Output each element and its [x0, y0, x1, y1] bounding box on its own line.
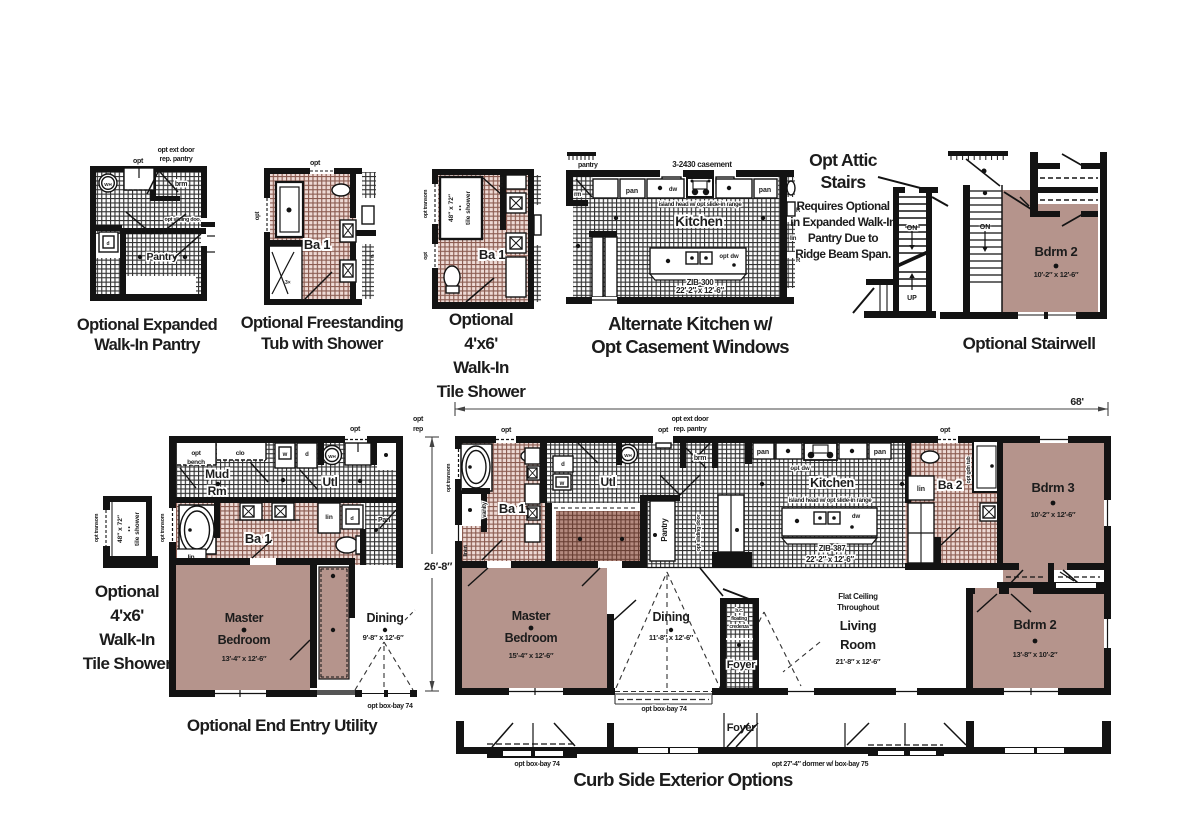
- svg-text:Pantry: Pantry: [147, 251, 178, 263]
- svg-text:tile shower: tile shower: [134, 512, 141, 546]
- svg-text:Opt Casement Windows: Opt Casement Windows: [591, 336, 789, 357]
- svg-text:Living: Living: [840, 618, 877, 633]
- svg-text:Ba 2: Ba 2: [938, 478, 963, 492]
- svg-text:UP: UP: [907, 295, 917, 302]
- svg-text:opt transom: opt transom: [160, 513, 166, 542]
- svg-text:Kitchen: Kitchen: [810, 476, 854, 490]
- svg-text:opt box-bay 74: opt box-bay 74: [514, 761, 560, 768]
- svg-text:in Expanded Walk-In: in Expanded Walk-In: [790, 215, 896, 229]
- svg-text:• •: • •: [458, 205, 464, 210]
- svg-text:10′-2″ x 12′-6″: 10′-2″ x 12′-6″: [1031, 510, 1076, 519]
- svg-text:b.c.: b.c.: [735, 608, 743, 614]
- svg-text:Utl: Utl: [322, 475, 337, 489]
- svg-text:opt sliding door: opt sliding door: [696, 513, 702, 551]
- svg-text:ON: ON: [907, 225, 918, 232]
- svg-text:Ridge Beam Span.: Ridge Beam Span.: [795, 247, 891, 261]
- svg-text:opt dw: opt dw: [790, 466, 810, 472]
- svg-text:opt sliding doo: opt sliding doo: [165, 217, 201, 223]
- svg-text:Throughout: Throughout: [837, 603, 880, 612]
- svg-text:Room: Room: [840, 637, 876, 652]
- svg-text:48″ x 72″: 48″ x 72″: [448, 194, 455, 222]
- svg-text:Foyer: Foyer: [727, 659, 756, 671]
- svg-text:opt: opt: [658, 427, 669, 434]
- svg-text:linen: linen: [463, 544, 469, 556]
- svg-text:opt: opt: [191, 450, 201, 457]
- svg-text:d: d: [350, 516, 353, 522]
- svg-text:Mud: Mud: [205, 467, 229, 481]
- svg-text:Flat Ceiling: Flat Ceiling: [838, 592, 878, 601]
- svg-text:WH: WH: [624, 453, 632, 458]
- svg-text:21′-8″ x 12′-6″: 21′-8″ x 12′-6″: [836, 657, 881, 666]
- svg-text:Optional End Entry Utility: Optional End Entry Utility: [187, 716, 378, 735]
- svg-text:rm: rm: [574, 192, 581, 198]
- svg-text:Optional Freestanding: Optional Freestanding: [241, 314, 404, 332]
- svg-text:WH: WH: [328, 454, 336, 459]
- svg-text:lin: lin: [790, 236, 797, 242]
- svg-text:opt ext door: opt ext door: [672, 416, 709, 423]
- svg-text:dw: dw: [852, 514, 861, 520]
- svg-text:Kitchen: Kitchen: [675, 214, 722, 229]
- svg-text:Stairs: Stairs: [820, 172, 866, 192]
- svg-text:opt: opt: [940, 427, 951, 434]
- svg-text:opt: opt: [310, 160, 321, 167]
- svg-text:opt transom: opt transom: [423, 189, 429, 218]
- svg-text:Opt Attic: Opt Attic: [809, 150, 878, 170]
- svg-text:10′-2″ x 12′-6″: 10′-2″ x 12′-6″: [1034, 270, 1079, 279]
- svg-text:opt ext door: opt ext door: [158, 147, 195, 154]
- svg-text:15′-4″ x 12′-6″: 15′-4″ x 12′-6″: [509, 651, 554, 660]
- svg-text:Bdrm 2: Bdrm 2: [1014, 617, 1057, 632]
- svg-text:Master: Master: [512, 609, 551, 623]
- svg-text:rep: rep: [413, 426, 423, 433]
- svg-text:linen: linen: [499, 177, 505, 187]
- svg-text:lin: lin: [917, 486, 925, 493]
- svg-text:pan: pan: [759, 187, 771, 194]
- svg-text:Tile Shower: Tile Shower: [437, 382, 526, 401]
- svg-text:13′-8″ x 10′-2″: 13′-8″ x 10′-2″: [1013, 650, 1058, 659]
- svg-text:opt: opt: [423, 252, 429, 260]
- svg-text:Pantry Due to: Pantry Due to: [808, 231, 878, 245]
- svg-text:dw: dw: [669, 187, 678, 193]
- svg-text:d: d: [371, 254, 374, 260]
- svg-text:rep. pantry: rep. pantry: [674, 426, 707, 433]
- svg-text:opt: opt: [350, 426, 361, 433]
- svg-text:Requires Optional: Requires Optional: [796, 199, 889, 213]
- svg-text:island head w/ opt slide-in ra: island head w/ opt slide-in range: [789, 498, 873, 504]
- svg-text:Optional Expanded: Optional Expanded: [77, 316, 217, 334]
- svg-text:pantry: pantry: [578, 162, 598, 169]
- svg-text:tile shower: tile shower: [465, 191, 472, 225]
- svg-text:clo: clo: [236, 450, 245, 457]
- svg-text:Master: Master: [225, 611, 264, 625]
- svg-text:opt transom: opt transom: [94, 513, 100, 542]
- svg-text:rep. pantry: rep. pantry: [160, 156, 193, 163]
- svg-text:48″ x 72″: 48″ x 72″: [117, 515, 124, 543]
- svg-text:• •: • •: [127, 526, 133, 531]
- svg-text:68': 68': [1070, 396, 1083, 408]
- svg-text:bench: bench: [187, 459, 205, 466]
- svg-text:opt 27′-4″ dormer w/ box-bay 7: opt 27′-4″ dormer w/ box-bay 75: [772, 761, 869, 768]
- svg-text:w: w: [559, 481, 565, 487]
- svg-text:ZIB-387: ZIB-387: [819, 544, 847, 553]
- svg-text:26′-8″: 26′-8″: [424, 561, 453, 573]
- svg-text:brm: brm: [694, 455, 706, 462]
- svg-text:Walk-In: Walk-In: [99, 630, 155, 649]
- svg-text:11′-8″ x 12′-6″: 11′-8″ x 12′-6″: [649, 633, 694, 642]
- svg-text:22′-2″ x 12′-6″: 22′-2″ x 12′-6″: [676, 286, 724, 295]
- svg-text:Alternate Kitchen w/: Alternate Kitchen w/: [608, 313, 772, 334]
- svg-text:9′-8″ x 12′-6″: 9′-8″ x 12′-6″: [363, 633, 404, 642]
- svg-text:Bedroom: Bedroom: [505, 631, 558, 645]
- svg-text:Dining: Dining: [652, 610, 689, 624]
- svg-text:Walk-In Pantry: Walk-In Pantry: [94, 336, 201, 354]
- svg-text:·3×: ·3×: [283, 280, 290, 286]
- svg-text:Curb Side Exterior Options: Curb Side Exterior Options: [573, 769, 793, 790]
- svg-text:island head w/ opt slide-in ra: island head w/ opt slide-in range: [659, 202, 743, 208]
- svg-text:WH: WH: [104, 182, 112, 187]
- svg-text:3-2430 casement: 3-2430 casement: [672, 160, 732, 169]
- svg-text:credenza: credenza: [729, 624, 749, 630]
- svg-text:opt box-bay 74: opt box-bay 74: [641, 706, 687, 713]
- svg-text:opt gdn tub: opt gdn tub: [966, 456, 972, 484]
- svg-text:4'x6': 4'x6': [464, 334, 498, 353]
- svg-text:4'x6': 4'x6': [110, 606, 144, 625]
- svg-text:opt: opt: [133, 158, 144, 165]
- svg-text:Ba 1: Ba 1: [304, 237, 330, 252]
- svg-text:opt transom: opt transom: [446, 463, 452, 492]
- svg-text:floating: floating: [731, 616, 747, 622]
- svg-text:Ba 1: Ba 1: [479, 247, 505, 262]
- svg-text:d: d: [561, 462, 565, 468]
- svg-text:Bdrm 3: Bdrm 3: [1032, 480, 1075, 495]
- svg-text:Walk-In: Walk-In: [453, 358, 509, 377]
- svg-text:brm: brm: [175, 181, 187, 188]
- svg-text:pan: pan: [626, 188, 638, 195]
- svg-text:d: d: [106, 241, 109, 247]
- svg-text:Optional Stairwell: Optional Stairwell: [963, 334, 1096, 353]
- svg-text:Bedroom: Bedroom: [218, 633, 271, 647]
- svg-text:Tile Shower: Tile Shower: [83, 654, 172, 673]
- svg-text:Bdrm 2: Bdrm 2: [1035, 244, 1078, 259]
- svg-text:Utl: Utl: [600, 475, 615, 489]
- svg-text:pan: pan: [874, 449, 886, 456]
- svg-text:lin: lin: [325, 514, 333, 521]
- svg-text:ON: ON: [980, 224, 991, 231]
- svg-text:d: d: [305, 452, 309, 458]
- svg-text:22′-2″ x 12′-6″: 22′-2″ x 12′-6″: [806, 555, 854, 564]
- svg-text:Dining: Dining: [366, 611, 403, 625]
- svg-text:Pantry: Pantry: [660, 518, 669, 542]
- svg-text:opt dw: opt dw: [719, 254, 739, 260]
- svg-text:opt: opt: [413, 416, 424, 423]
- svg-text:opt: opt: [255, 211, 261, 220]
- svg-text:opt box-bay 74: opt box-bay 74: [367, 703, 413, 710]
- svg-text:Ba 1: Ba 1: [499, 501, 525, 516]
- svg-text:pan: pan: [757, 449, 769, 456]
- svg-text:Optional: Optional: [95, 582, 159, 601]
- svg-text:Rm: Rm: [208, 484, 227, 498]
- svg-text:opt: opt: [501, 427, 512, 434]
- svg-text:vanity: vanity: [482, 501, 488, 518]
- svg-text:13′-4″ x 12′-6″: 13′-4″ x 12′-6″: [222, 654, 267, 663]
- svg-text:Tub with Shower: Tub with Shower: [261, 335, 384, 353]
- svg-text:Optional: Optional: [449, 310, 513, 329]
- svg-text:w: w: [282, 452, 288, 458]
